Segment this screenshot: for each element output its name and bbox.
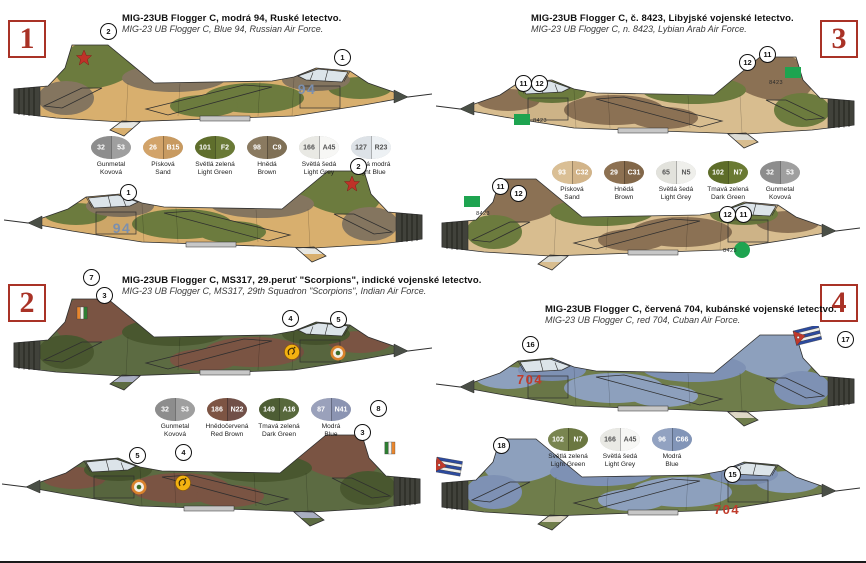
swatch-oval: 166A45 [600,428,640,451]
paint-swatch: 166A45Světlá šedáLight Grey [597,428,643,469]
swatch-label: Tmavá zelenáDark Green [707,186,748,202]
scheme1-title: MIG-23UB Flogger C, modrá 94, Ruské lete… [122,13,341,34]
paint-swatch: 166A45Světlá šedáLight Grey [296,136,342,177]
swatch-oval: 87N41 [311,398,351,421]
callout-circle: 15 [724,466,741,483]
callout-circle: 2 [100,23,117,40]
swatch-label: ModráBlue [663,453,682,469]
callout-circle: 5 [330,311,347,328]
swatch-label: GunmetalKovová [97,161,126,177]
swatch-oval: 98C9 [247,136,287,159]
callout-circle: 12 [531,75,548,92]
callout-circle: 1 [334,49,351,66]
scheme2-title-cz: MIG-23UB Flogger C, MS317, 29.peruť "Sco… [122,275,481,286]
scheme4-title-cz: MIG-23UB Flogger C, červená 704, kubánsk… [545,304,837,315]
callout-circle: 17 [837,331,854,348]
swatch-label: Světlá šedáLight Grey [302,161,336,177]
paint-swatch: 101F2Světlá zelenáLight Green [192,136,238,177]
swatch-label: Světlá zelenáLight Green [548,453,588,469]
paint-swatch: 3253GunmetalKovová [88,136,134,177]
callout-circle: 4 [175,444,192,461]
paint-swatch: 87N41ModráBlue [308,398,354,439]
swatch-oval: 93C32 [552,161,592,184]
swatch-oval: 65N5 [656,161,696,184]
scheme3-title-en: MIG-23 UB Flogger C, n. 8423, Lybian Ara… [531,24,794,34]
swatch-label: HnědočervenáRed Brown [206,423,249,439]
aircraft-profile-russian-port: 94 [4,162,428,272]
callout-circle: 11 [759,46,776,63]
indian-fin-flash-marking [77,307,87,319]
aircraft-profile-russian-starboard: 94 [8,36,432,146]
serial-number: 8423 [723,248,737,254]
aircraft-profile-indian-starboard [8,290,432,400]
serial-number: 8423 [476,211,490,217]
swatch-oval: 102N7 [708,161,748,184]
swatch-oval: 186N22 [207,398,247,421]
callout-circle: 12 [739,54,756,71]
callout-circle: 2 [350,158,367,175]
serial-number: 8423 [533,118,547,124]
swatch-label: Tmavá zelenáDark Green [258,423,299,439]
swatch-label: ModráBlue [322,423,341,439]
swatch-oval: 127R23 [351,136,391,159]
tactical-number-94: 94 [298,81,317,97]
scheme-number-2: 2 [8,284,46,322]
libyan-flag-marking [785,67,801,78]
scheme1-title-cz: MIG-23UB Flogger C, modrá 94, Ruské lete… [122,13,341,24]
scheme4-paint-swatches: 102N7Světlá zelenáLight Green 166A45Svět… [545,428,695,469]
swatch-label: HnědáBrown [614,186,633,202]
callout-circle: 1 [120,184,137,201]
paint-swatch: 102N7Světlá zelenáLight Green [545,428,591,469]
paint-swatch: 26B15PískováSand [140,136,186,177]
scheme3-paint-swatches: 93C32PískováSand 29C31HnědáBrown 65N5Svě… [549,161,803,202]
callout-circle: 16 [522,336,539,353]
scheme2-paint-swatches: 3253GunmetalKovová 186N22HnědočervenáRed… [152,398,354,439]
swatch-label: PískováSand [560,186,583,202]
swatch-oval: 96C66 [652,428,692,451]
paint-swatch: 96C66ModráBlue [649,428,695,469]
scheme2-title-en: MIG-23 UB Flogger C, MS317, 29th Squadro… [122,286,481,296]
paint-swatch: 65N5Světlá šedáLight Grey [653,161,699,202]
swatch-label: HnědáBrown [257,161,276,177]
indian-roundel-marking [331,346,346,361]
swatch-oval: 3253 [760,161,800,184]
indian-fin-flash-marking [385,442,395,454]
callout-circle: 3 [96,287,113,304]
swatch-label: Světlá šedáLight Grey [603,453,637,469]
scheme-number-1: 1 [8,20,46,58]
swatch-oval: 26B15 [143,136,183,159]
swatch-label: GunmetalKovová [161,423,190,439]
callout-circle: 7 [83,269,100,286]
scheme1-title-en: MIG-23 UB Flogger C, Blue 94, Russian Ai… [122,24,341,34]
cuban-flag-marking [436,457,463,476]
tactical-number-704: 704 [714,502,740,517]
swatch-label: GunmetalKovová [766,186,795,202]
swatch-oval: 3253 [155,398,195,421]
scorpion-badge-marking [176,476,191,491]
swatch-oval: 101F2 [195,136,235,159]
paint-swatch: 186N22HnědočervenáRed Brown [204,398,250,439]
swatch-oval: 166A45 [299,136,339,159]
callout-circle: 12 [719,206,736,223]
paint-swatch: 93C32PískováSand [549,161,595,202]
scheme3-title: MIG-23UB Flogger C, č. 8423, Libyjské vo… [531,13,794,34]
swatch-label: PískováSand [151,161,174,177]
swatch-oval: 29C31 [604,161,644,184]
paint-swatch: 98C9HnědáBrown [244,136,290,177]
aircraft-profile-indian-port [2,426,426,536]
callout-circle: 12 [510,185,527,202]
paint-swatch: 102N7Tmavá zelenáDark Green [705,161,751,202]
serial-number: 8423 [769,80,783,86]
swatch-label: Světlá šedáLight Grey [659,186,693,202]
indian-roundel-marking [132,480,147,495]
scheme2-title: MIG-23UB Flogger C, MS317, 29.peruť "Sco… [122,275,481,296]
paint-swatch: 3253GunmetalKovová [757,161,803,202]
callout-circle: 11 [515,75,532,92]
painting-guide-sheet: 1 3 2 4 MIG-23UB Flogger C, modrá 94, Ru… [0,0,866,563]
callout-circle: 18 [493,437,510,454]
swatch-label: Světlá zelenáLight Green [195,161,235,177]
scheme3-title-cz: MIG-23UB Flogger C, č. 8423, Libyjské vo… [531,13,794,24]
scheme4-title: MIG-23UB Flogger C, červená 704, kubánsk… [545,304,837,325]
aircraft-profile-libyan-port: 8423 8423 [436,48,860,158]
scheme1-paint-swatches: 3253GunmetalKovová 26B15PískováSand 101F… [88,136,394,177]
libyan-flag-marking [514,114,530,125]
libyan-flag-marking [464,196,480,207]
scorpion-badge-marking [285,345,300,360]
scheme-number-3: 3 [820,20,858,58]
aircraft-profile-cuban-port: 704 [436,326,860,436]
callout-circle: 11 [492,178,509,195]
tactical-number-704: 704 [517,372,543,387]
callout-circle: 8 [370,400,387,417]
paint-swatch: 3253GunmetalKovová [152,398,198,439]
callout-circle: 11 [735,206,752,223]
swatch-oval: 149A16 [259,398,299,421]
callout-circle: 3 [354,424,371,441]
callout-circle: 5 [129,447,146,464]
swatch-oval: 3253 [91,136,131,159]
paint-swatch: 29C31HnědáBrown [601,161,647,202]
tactical-number-94: 94 [113,220,132,236]
callout-circle: 4 [282,310,299,327]
swatch-oval: 102N7 [548,428,588,451]
cuban-flag-marking [793,326,822,346]
paint-swatch: 149A16Tmavá zelenáDark Green [256,398,302,439]
scheme4-title-en: MIG-23 UB Flogger C, red 704, Cuban Air … [545,315,837,325]
